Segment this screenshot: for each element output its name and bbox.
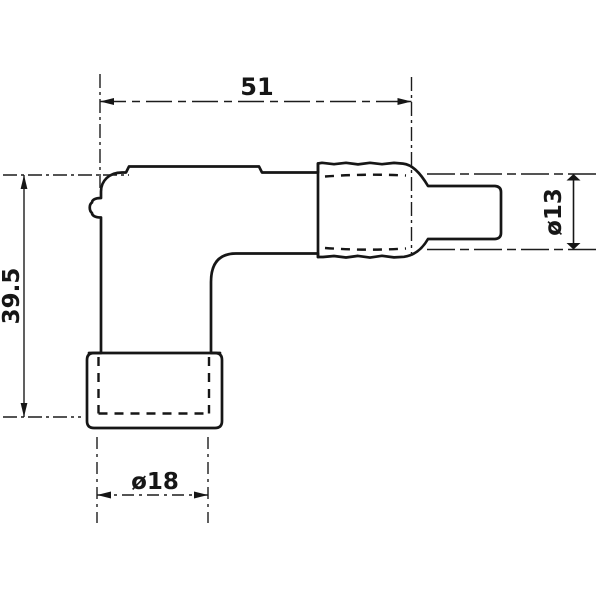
collar-hidden-top	[325, 175, 406, 177]
dim-width-arrow-right	[398, 98, 412, 105]
dim-boot-arrow-top	[567, 174, 581, 181]
dim-width-label: 51	[240, 73, 273, 101]
dim-height-arrow-top	[21, 175, 28, 189]
dim-cap-diameter: ø18	[97, 437, 208, 523]
dim-height: 39.5	[0, 175, 27, 417]
collar-hidden-bottom	[325, 248, 406, 250]
dim-height-label: 39.5	[0, 268, 25, 325]
dim-width-arrow-left	[100, 98, 114, 105]
part-body-outline	[87, 163, 501, 428]
part-outline	[87, 163, 501, 428]
dim-width: 51	[100, 73, 412, 105]
dim-cap-diameter-label: ø18	[131, 469, 179, 495]
drawing-canvas: 51 39.5 ø13 ø18	[0, 0, 600, 600]
spark-plug-cap-drawing: 51 39.5 ø13 ø18	[0, 0, 600, 600]
dim-boot-arrow-bottom	[567, 243, 581, 250]
dim-boot-diameter-label: ø13	[541, 188, 567, 236]
dim-cap-arrow-right	[194, 492, 208, 499]
dim-height-arrow-bottom	[21, 403, 28, 417]
dim-cap-arrow-left	[97, 492, 111, 499]
centerlines	[3, 74, 412, 417]
hidden-lines	[99, 175, 407, 414]
